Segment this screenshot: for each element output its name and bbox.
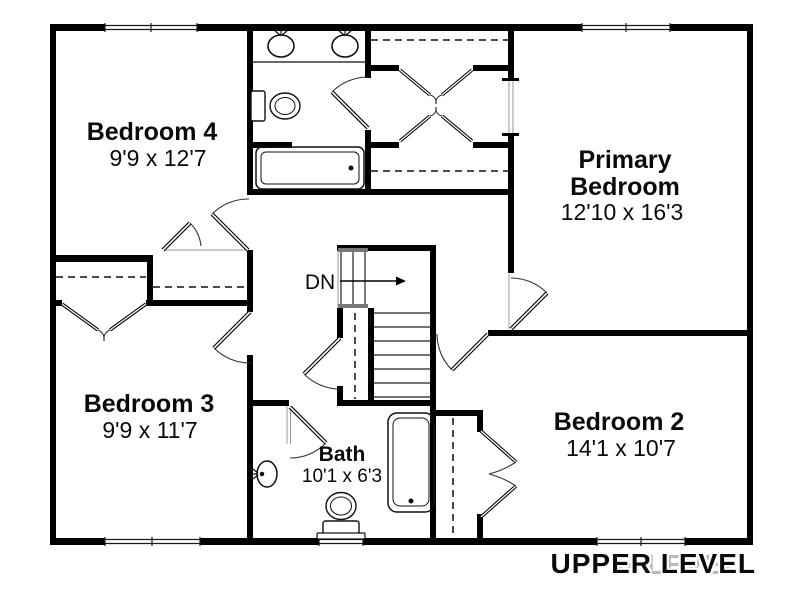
floor-plan-page: DN [0, 0, 800, 600]
railing-balusters [341, 252, 365, 304]
sink-icon [252, 461, 277, 487]
dn-label: DN [305, 271, 335, 294]
bedroom3-door [214, 312, 250, 363]
staircase: DN [305, 248, 430, 397]
sink-icon [332, 29, 358, 57]
railing-cap-bottom [338, 304, 368, 308]
primary-name-line2: Bedroom [570, 173, 680, 201]
corridor-closet-bifold-lower [400, 107, 472, 141]
walls [50, 24, 753, 545]
bedroom2-name: Bedroom 2 [554, 408, 685, 436]
primary-bath-door [332, 77, 368, 128]
dn-arrow [340, 277, 406, 286]
toilet-icon [251, 91, 300, 121]
windows [105, 23, 685, 546]
bedroom4-dims: 9'9 x 12'7 [109, 145, 206, 171]
bathtub-icon [388, 413, 434, 512]
floor-plan-drawing: DN [0, 0, 800, 600]
bedroom2-closet-bifold [481, 431, 516, 517]
window-primary [582, 23, 670, 32]
bathtub-icon [256, 147, 364, 189]
dn-arrowhead-icon [396, 277, 406, 286]
understair-closet-door [304, 338, 340, 389]
bath-dims: 10'1 x 6'3 [302, 466, 382, 487]
bedroom3-closet-bifold [62, 304, 146, 341]
primary-name-line1: Primary [578, 146, 671, 174]
sink-icon [268, 29, 294, 57]
corridor-closet-bifold-upper [400, 70, 472, 104]
toilet-icon [317, 493, 365, 540]
window-bedroom2 [597, 537, 685, 546]
bedroom4-name: Bedroom 4 [87, 118, 218, 146]
primary-bedroom-door [511, 278, 547, 329]
railing-cap-top [338, 248, 368, 252]
bedroom2-dims: 14'1 x 10'7 [566, 435, 676, 461]
closet-door-small [163, 223, 201, 250]
window-bedroom4 [105, 23, 197, 32]
bedroom3-dims: 9'9 x 11'7 [102, 417, 197, 443]
level-title: R LEVEL UPPER LEVEL [551, 548, 756, 584]
bedroom2-door [437, 334, 488, 370]
level-title-text: UPPER LEVEL [551, 548, 756, 579]
window-bedroom3 [105, 537, 200, 546]
stair-treads [374, 313, 430, 397]
primary-dims: 12'10 x 16'3 [561, 199, 684, 225]
bedroom3-name: Bedroom 3 [84, 390, 215, 418]
bedroom4-door [212, 199, 249, 250]
bath-name: Bath [319, 443, 366, 466]
